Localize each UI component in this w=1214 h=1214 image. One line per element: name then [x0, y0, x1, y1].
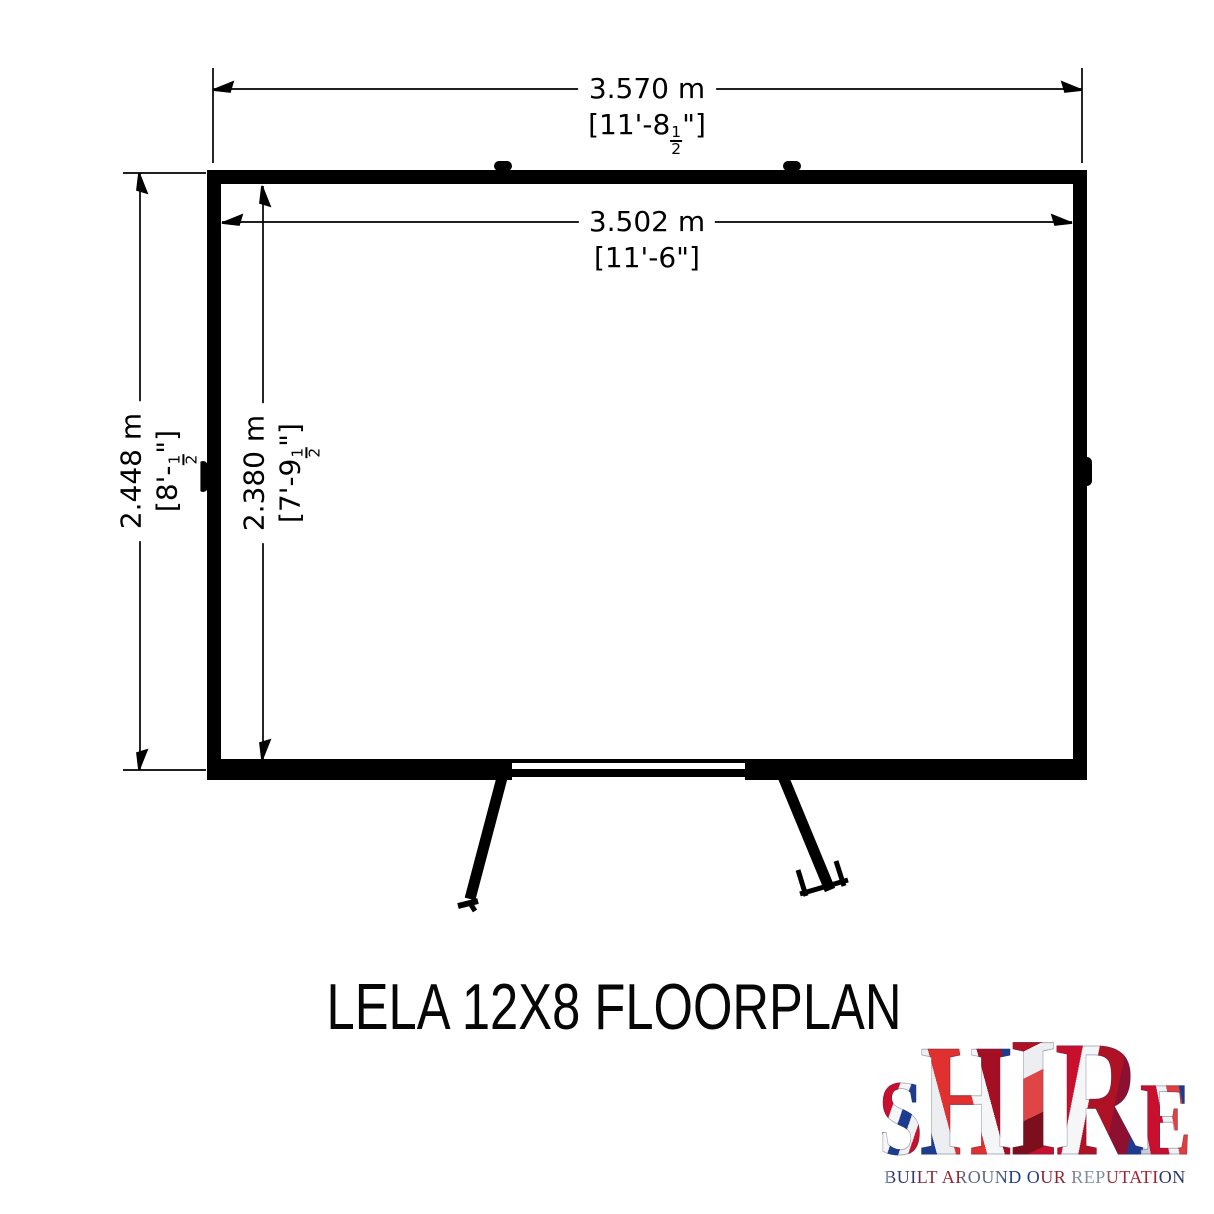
roof-support-mark-right	[783, 161, 801, 171]
dimension-outer-width-imperial: [11'-812"]	[588, 107, 706, 158]
arrow-outer-depth-top	[137, 173, 147, 193]
arrow-inner-width-right	[1052, 215, 1072, 225]
dimension-label-outer-depth: 2.448 m [8'-12"]	[113, 401, 200, 541]
wall-bottom-left-segment	[207, 759, 512, 780]
dimension-inner-width-imperial: [11'-6"]	[589, 240, 705, 276]
dimension-inner-depth-imperial: [7'-912"]	[272, 415, 323, 531]
dimension-outer-width-metric: 3.570 m	[588, 71, 706, 107]
door-leaf-left	[470, 774, 503, 899]
double-doors-open	[458, 774, 848, 911]
logo-letter-s: S	[879, 1066, 923, 1173]
arrow-outer-width-right	[1062, 82, 1082, 92]
wall-left	[207, 170, 221, 776]
wall-stud-mark-right	[1082, 457, 1092, 486]
floorplan-title: LELA 12X8 FLOORPLAN	[327, 974, 902, 1039]
logo-letter-i: I	[1009, 1012, 1058, 1182]
arrow-outer-depth-bottom	[137, 750, 147, 770]
dimension-outer-depth-imperial: [8'-12"]	[149, 413, 200, 529]
dimension-label-inner-depth: 2.380 m [7'-912"]	[236, 403, 323, 543]
logo-letter-h: H	[920, 1020, 1012, 1180]
door-leaf-left-stay	[458, 901, 478, 906]
dimension-label-inner-width: 3.502 m [11'-6"]	[579, 204, 715, 276]
logo-letter-r: R	[1055, 1016, 1143, 1181]
logo-letter-e: E	[1140, 1068, 1191, 1172]
arrow-outer-width-left	[213, 82, 233, 92]
roof-support-mark-left	[494, 161, 512, 171]
wall-bottom-right-segment	[745, 759, 1087, 780]
brand-logo-letters: S H I R E	[906, 1012, 1165, 1182]
dimension-inner-width-metric: 3.502 m	[589, 204, 705, 240]
dimension-outer-depth-metric: 2.448 m	[113, 413, 149, 529]
floorplan-page: 3.570 m [11'-812"] 3.502 m [11'-6"] 2.44…	[0, 0, 1214, 1214]
brand-tagline: BUILT AROUND OUR REPUTATION	[860, 1168, 1210, 1188]
dimension-label-outer-width: 3.570 m [11'-812"]	[578, 71, 716, 158]
brand-logo: S H I R E	[860, 1012, 1210, 1182]
door-leaf-right	[782, 774, 830, 890]
wall-top	[207, 170, 1087, 184]
arrow-inner-width-left	[222, 215, 242, 225]
arrow-inner-depth-bottom	[260, 740, 270, 760]
dimension-inner-depth-metric: 2.380 m	[236, 415, 272, 531]
arrow-inner-depth-top	[260, 186, 270, 206]
